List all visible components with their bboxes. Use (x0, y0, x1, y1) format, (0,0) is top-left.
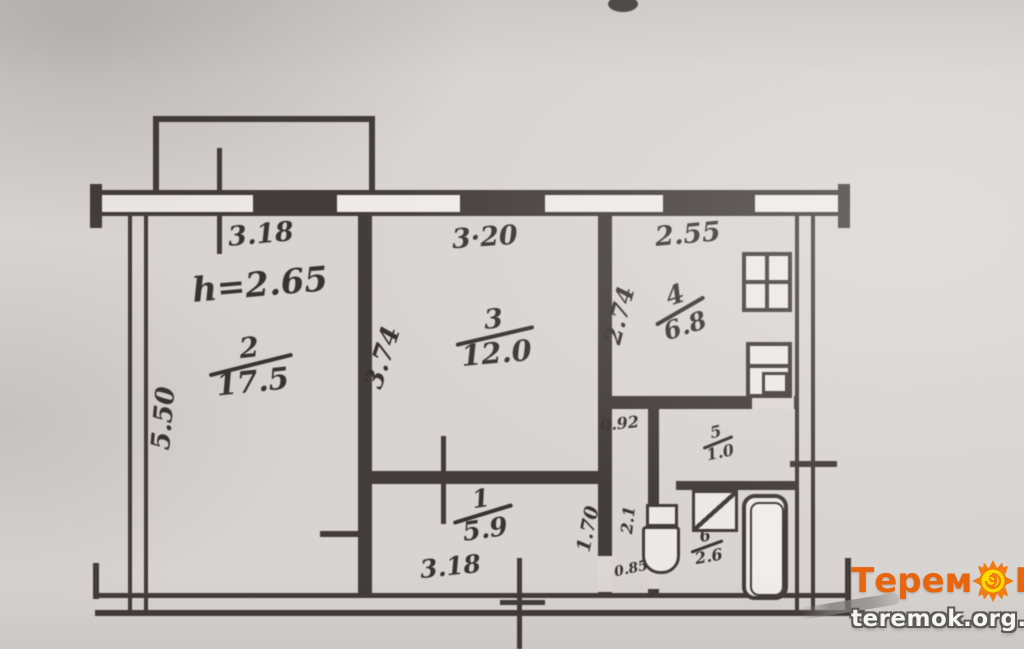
door-tick-room2 (320, 531, 362, 537)
wall-wc-bath (676, 481, 797, 490)
dim-room3-width: 3·20 (451, 222, 518, 254)
bathtub-icon (742, 494, 788, 600)
room3-label: 3 12.0 (452, 303, 537, 372)
top-wall-left-cap (90, 184, 102, 228)
top-wall-outer-line (95, 190, 850, 195)
sink-icon (746, 342, 792, 398)
door-opening-hall-corridor (598, 556, 612, 592)
watermark-url: teremok.org.ua (851, 606, 1024, 632)
hall-label: 1 5.9 (448, 482, 517, 547)
bottom-wall-left-cap (93, 563, 99, 599)
ink-smudge (608, 0, 638, 12)
left-wall-outer (128, 214, 132, 616)
window-glass-segment (253, 195, 337, 212)
hall-number: 1 (470, 485, 491, 512)
wall-hall-top (365, 471, 600, 484)
dim-hall-width: 3.18 (419, 551, 482, 582)
bottom-wall-inner-line (95, 593, 845, 598)
watermark-brand-suffix: К (1014, 561, 1024, 601)
sink-divider (750, 364, 788, 368)
tick-right-wall (790, 461, 837, 467)
right-wall-inner (795, 214, 799, 612)
wall-room3-kitchen (598, 214, 612, 596)
toilet-tank (646, 504, 678, 527)
stove-icon (742, 252, 792, 312)
tick-room3-hall (441, 436, 446, 524)
bath-number: 6 (698, 527, 712, 545)
wc-label: 5 1.0 (699, 421, 738, 464)
room2-number: 2 (238, 333, 260, 363)
dim-room2-width: 3.18 (227, 218, 295, 251)
sun-icon (971, 559, 1015, 603)
bathtub-inner (750, 502, 784, 596)
dim-corridor-depth: 2.1 (619, 477, 641, 534)
kitchen-area: 6.8 (660, 307, 709, 344)
bath-label: 6 2.6 (687, 525, 727, 567)
window-glass-segment (460, 195, 545, 212)
stove-grid-h (746, 280, 788, 284)
window-glass-segment (663, 195, 755, 212)
bottom-wall-outer-line (95, 610, 865, 616)
top-wall-right-cap (838, 184, 850, 228)
dim-kitchen-width: 2.55 (654, 218, 722, 251)
dim-room2-depth: 5.50 (148, 359, 182, 451)
dimension-tick-bottom (500, 600, 545, 605)
left-wall-inner (144, 214, 148, 616)
sink-basin (762, 372, 788, 394)
watermark-logo: Терем К (851, 559, 1024, 603)
ceiling-height-note: h=2.65 (191, 262, 329, 308)
dim-corridor-width: 0.92 (599, 414, 639, 434)
kitchen-label: 4 6.8 (645, 275, 716, 347)
right-wall-outer (811, 214, 815, 612)
wall-room2-room3 (358, 214, 372, 596)
floor-plan: 3.18 h=2.65 2 17.5 5.50 3.74 3·20 3 12.0… (0, 0, 1024, 649)
room3-number: 3 (483, 305, 504, 334)
dim-door-width: 0.85 (613, 559, 649, 580)
balcony-outline (153, 116, 375, 198)
room2-label: 2 17.5 (205, 330, 297, 403)
watermark-brand-prefix: Терем (851, 561, 972, 601)
top-wall-inner-line (95, 212, 850, 216)
